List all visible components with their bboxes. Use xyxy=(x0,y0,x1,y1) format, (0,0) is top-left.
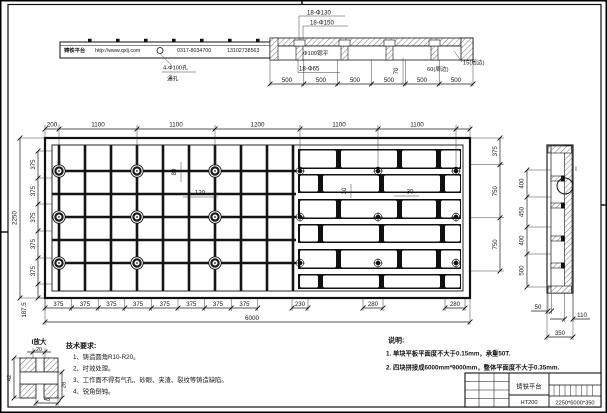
dim-label: 80 xyxy=(171,168,178,175)
dim-label: 375 xyxy=(30,159,37,170)
dim-label: 750 xyxy=(492,186,499,197)
detail-title: I放大 xyxy=(31,337,46,346)
dim-edge-15: 15(周边) xyxy=(463,59,485,67)
dim-label: 375 xyxy=(53,301,64,308)
website-text: http://www.qxlj.com xyxy=(95,48,141,54)
dim-label: 6000 xyxy=(245,315,260,322)
hole-callout-bottom: 通孔 xyxy=(167,75,179,83)
dim-label: 20 xyxy=(36,347,42,353)
dim-label: 400 xyxy=(519,235,526,246)
tech-item: 3、工作面不得有气孔、砂眼、夹渣、裂纹等铸造缺陷。 xyxy=(73,375,228,384)
dim-label: 1100 xyxy=(169,122,183,129)
material: HT200 xyxy=(520,400,537,406)
phone-text: 0317-8034700 xyxy=(177,48,211,54)
dim-label: 375 xyxy=(239,301,250,308)
dim-label: 375 xyxy=(213,301,224,308)
dim-label: 500 xyxy=(417,77,428,84)
dim-label: 375 xyxy=(106,301,117,308)
dim-edge-60: 60(周边) xyxy=(427,65,449,73)
dim-label: 500 xyxy=(384,77,395,84)
tech-item: 4、锐角倒钝。 xyxy=(73,387,114,396)
notes-item: 1. 单块平板平面度不大于0.15mm，承重50T. xyxy=(386,349,510,358)
dim-label: 200 xyxy=(47,122,58,129)
callout-d65: 18-Φ65 xyxy=(299,66,320,73)
drawing-sheet: 铸铁平台 http://www.qxlj.com 0317-8034700 13… xyxy=(0,0,607,413)
callout-d150: 18-Φ150 xyxy=(310,20,334,27)
dim-label: 500 xyxy=(282,77,293,84)
dim-label: 375 xyxy=(30,265,37,276)
dim-label: 375 xyxy=(30,212,37,223)
dim-label: 30 xyxy=(341,187,348,194)
dim-label: 110 xyxy=(577,312,587,319)
dim-label: 375 xyxy=(492,146,499,157)
dim-label: 375 xyxy=(30,238,37,249)
dim-label: 30 xyxy=(407,189,414,196)
dim-label: 42 xyxy=(7,375,13,381)
detail-mark-label: I xyxy=(575,166,577,173)
dim-label: 1100 xyxy=(410,122,424,129)
plan-view: 80 120 30 30 xyxy=(45,138,470,298)
tech-item: 2、时效处理。 xyxy=(73,364,114,373)
dim-label: 400 xyxy=(519,178,526,189)
tech-title: 技术要求: xyxy=(66,341,96,350)
dim-label: 500 xyxy=(519,265,526,276)
brand-text: 铸铁平台 xyxy=(64,46,86,54)
dim-label: 375 xyxy=(30,185,37,196)
mobile-text: 13102738563 xyxy=(227,48,259,54)
title-block: 铸铁平台 HT200 2250*6000*350 xyxy=(465,373,601,407)
dim-label: 375 xyxy=(160,301,171,308)
dim-label: 120 xyxy=(195,190,206,197)
callout-d130: 18-Φ130 xyxy=(307,10,331,17)
dim-label: 375 xyxy=(133,301,144,308)
dim-label: 230 xyxy=(295,301,306,308)
dim-label: 375 xyxy=(186,301,197,308)
dim-label: 350 xyxy=(555,330,566,337)
hole-callout-top: 4-Φ100孔 xyxy=(163,64,188,72)
notes-title: 说明: xyxy=(388,336,404,345)
dim-label: 750 xyxy=(492,239,499,250)
lifting-hole xyxy=(157,48,163,54)
dim-label: 500 xyxy=(316,77,327,84)
callout-spotface: Φ100锪平 xyxy=(303,49,329,57)
dim-label: 375 xyxy=(80,301,91,308)
dim-label: 50 xyxy=(535,304,542,311)
dim-label: 1200 xyxy=(250,122,265,129)
part-name: 铸铁平台 xyxy=(516,382,541,391)
tech-item: 1、铸造圆角R10-R20。 xyxy=(73,352,139,361)
overall-size: 2250*6000*350 xyxy=(555,400,594,406)
dim-label: 500 xyxy=(451,77,462,84)
dim-label: 500 xyxy=(350,77,361,84)
dim-label: 28 xyxy=(62,382,68,388)
dim-label: 70 xyxy=(393,67,400,74)
notes-item: 2. 四块拼接成6000mm*9000mm，整体平面度不大于0.35mm. xyxy=(386,363,559,372)
dim-label: 280 xyxy=(450,301,461,308)
dim-label: 1100 xyxy=(91,122,105,129)
dim-label: 280 xyxy=(368,301,379,308)
dim-label: 1100 xyxy=(332,122,346,129)
dim-label: 187.5 xyxy=(21,302,28,318)
dim-label: 450 xyxy=(519,206,526,217)
dim-label: 2250 xyxy=(12,211,19,226)
